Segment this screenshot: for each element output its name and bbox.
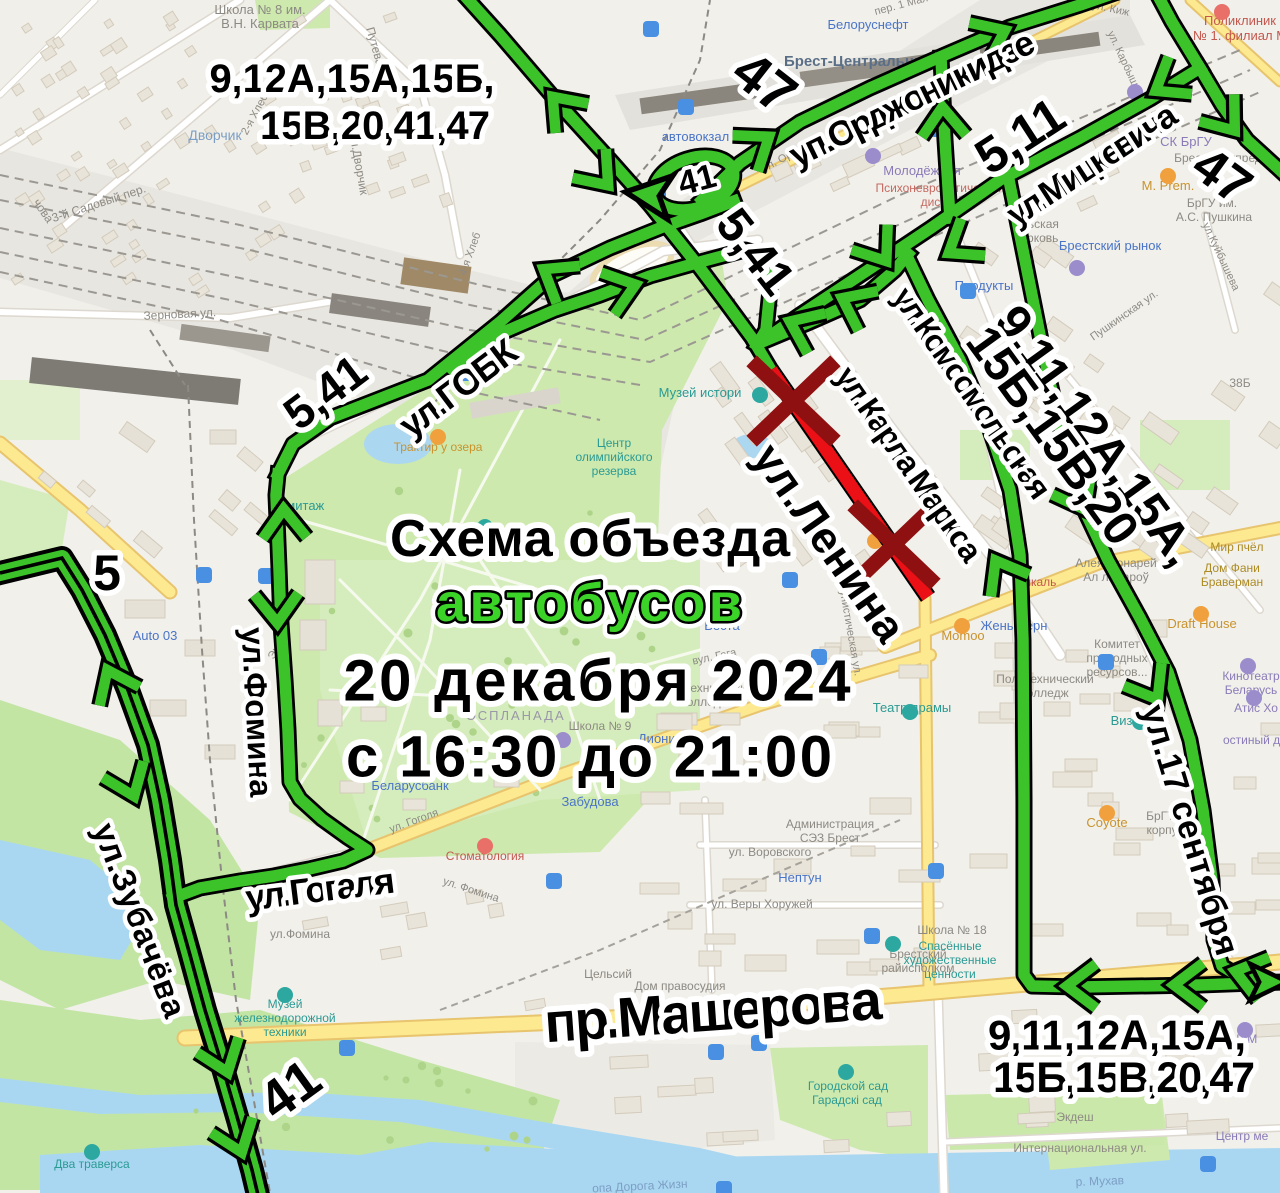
svg-text:Гарадскі сад: Гарадскі сад [812,1093,882,1107]
svg-text:Дом Фани: Дом Фани [1204,561,1260,575]
svg-text:Городской сад: Городской сад [808,1079,888,1093]
svg-text:Политехнический: Политехнический [996,672,1093,686]
svg-text:железнодорожной: железнодорожной [234,1011,335,1025]
svg-text:Школа № 18: Школа № 18 [917,923,987,937]
svg-text:автобусов: автобусов [436,573,742,633]
svg-text:ул.Фомина: ул.Фомина [270,927,330,941]
svg-text:А.С. Пушкина: А.С. Пушкина [1176,210,1253,224]
svg-text:Экдеш: Экдеш [1056,1110,1093,1124]
svg-text:Музей истори: Музей истори [659,385,742,400]
svg-text:Белоруснефт: Белоруснефт [827,17,908,32]
svg-text:Дворчик: Дворчик [188,127,242,143]
svg-text:Школа № 8 им.: Школа № 8 им. [214,2,305,17]
svg-text:15В,20,41,47: 15В,20,41,47 [260,104,490,148]
svg-text:с 16:30 до 21:00: с 16:30 до 21:00 [346,725,832,790]
svg-text:Цельсий: Цельсий [584,967,632,981]
svg-text:Комитет: Комитет [1094,637,1140,651]
svg-text:В.Н. Карвата: В.Н. Карвата [221,16,299,31]
svg-text:ценности: ценности [924,967,976,981]
svg-text:р. Мухав: р. Мухав [1075,1173,1124,1189]
svg-text:ул. Веры Хоружей: ул. Веры Хоружей [711,897,812,911]
svg-text:Центр: Центр [597,436,632,450]
svg-text:38Б: 38Б [1229,376,1250,390]
svg-text:5: 5 [93,545,121,601]
svg-text:№ 1. филиал М: № 1. филиал М [1193,28,1280,43]
svg-text:9,12А,15А,15Б,: 9,12А,15А,15Б, [210,57,495,101]
svg-text:Центр ме: Центр ме [1216,1129,1269,1143]
svg-text:СЭЗ Брест: СЭЗ Брест [800,831,861,845]
svg-text:природных: природных [1086,651,1147,665]
svg-text:Забудова: Забудова [561,794,619,809]
svg-text:Нептун: Нептун [778,870,821,885]
svg-text:Auto 03: Auto 03 [133,628,178,643]
svg-text:20 декабря 2024: 20 декабря 2024 [344,649,851,714]
svg-text:15Б,15В,20,47: 15Б,15В,20,47 [993,1054,1255,1102]
svg-text:ул. Воровского: ул. Воровского [729,845,812,859]
svg-text:техники: техники [263,1025,306,1039]
svg-text:Интернациональная ул.: Интернациональная ул. [1013,1141,1146,1155]
svg-text:9,11,12А,15А,: 9,11,12А,15А, [988,1012,1246,1059]
svg-text:художественные: художественные [904,953,997,967]
svg-text:остиный дво: остиный дво [1223,733,1280,747]
svg-text:Схема объезда: Схема объезда [390,510,791,568]
svg-text:резерва: резерва [592,464,637,478]
svg-text:олимпийского: олимпийского [575,450,652,464]
svg-text:Браверман: Браверман [1201,575,1263,589]
svg-text:Мир пчёл: Мир пчёл [1210,540,1263,554]
svg-text:Брестский рынок: Брестский рынок [1059,238,1162,253]
svg-text:Администрация: Администрация [786,817,874,831]
svg-text:ресурсов...: ресурсов... [1086,665,1147,679]
svg-text:Спасённые: Спасённые [918,939,981,953]
